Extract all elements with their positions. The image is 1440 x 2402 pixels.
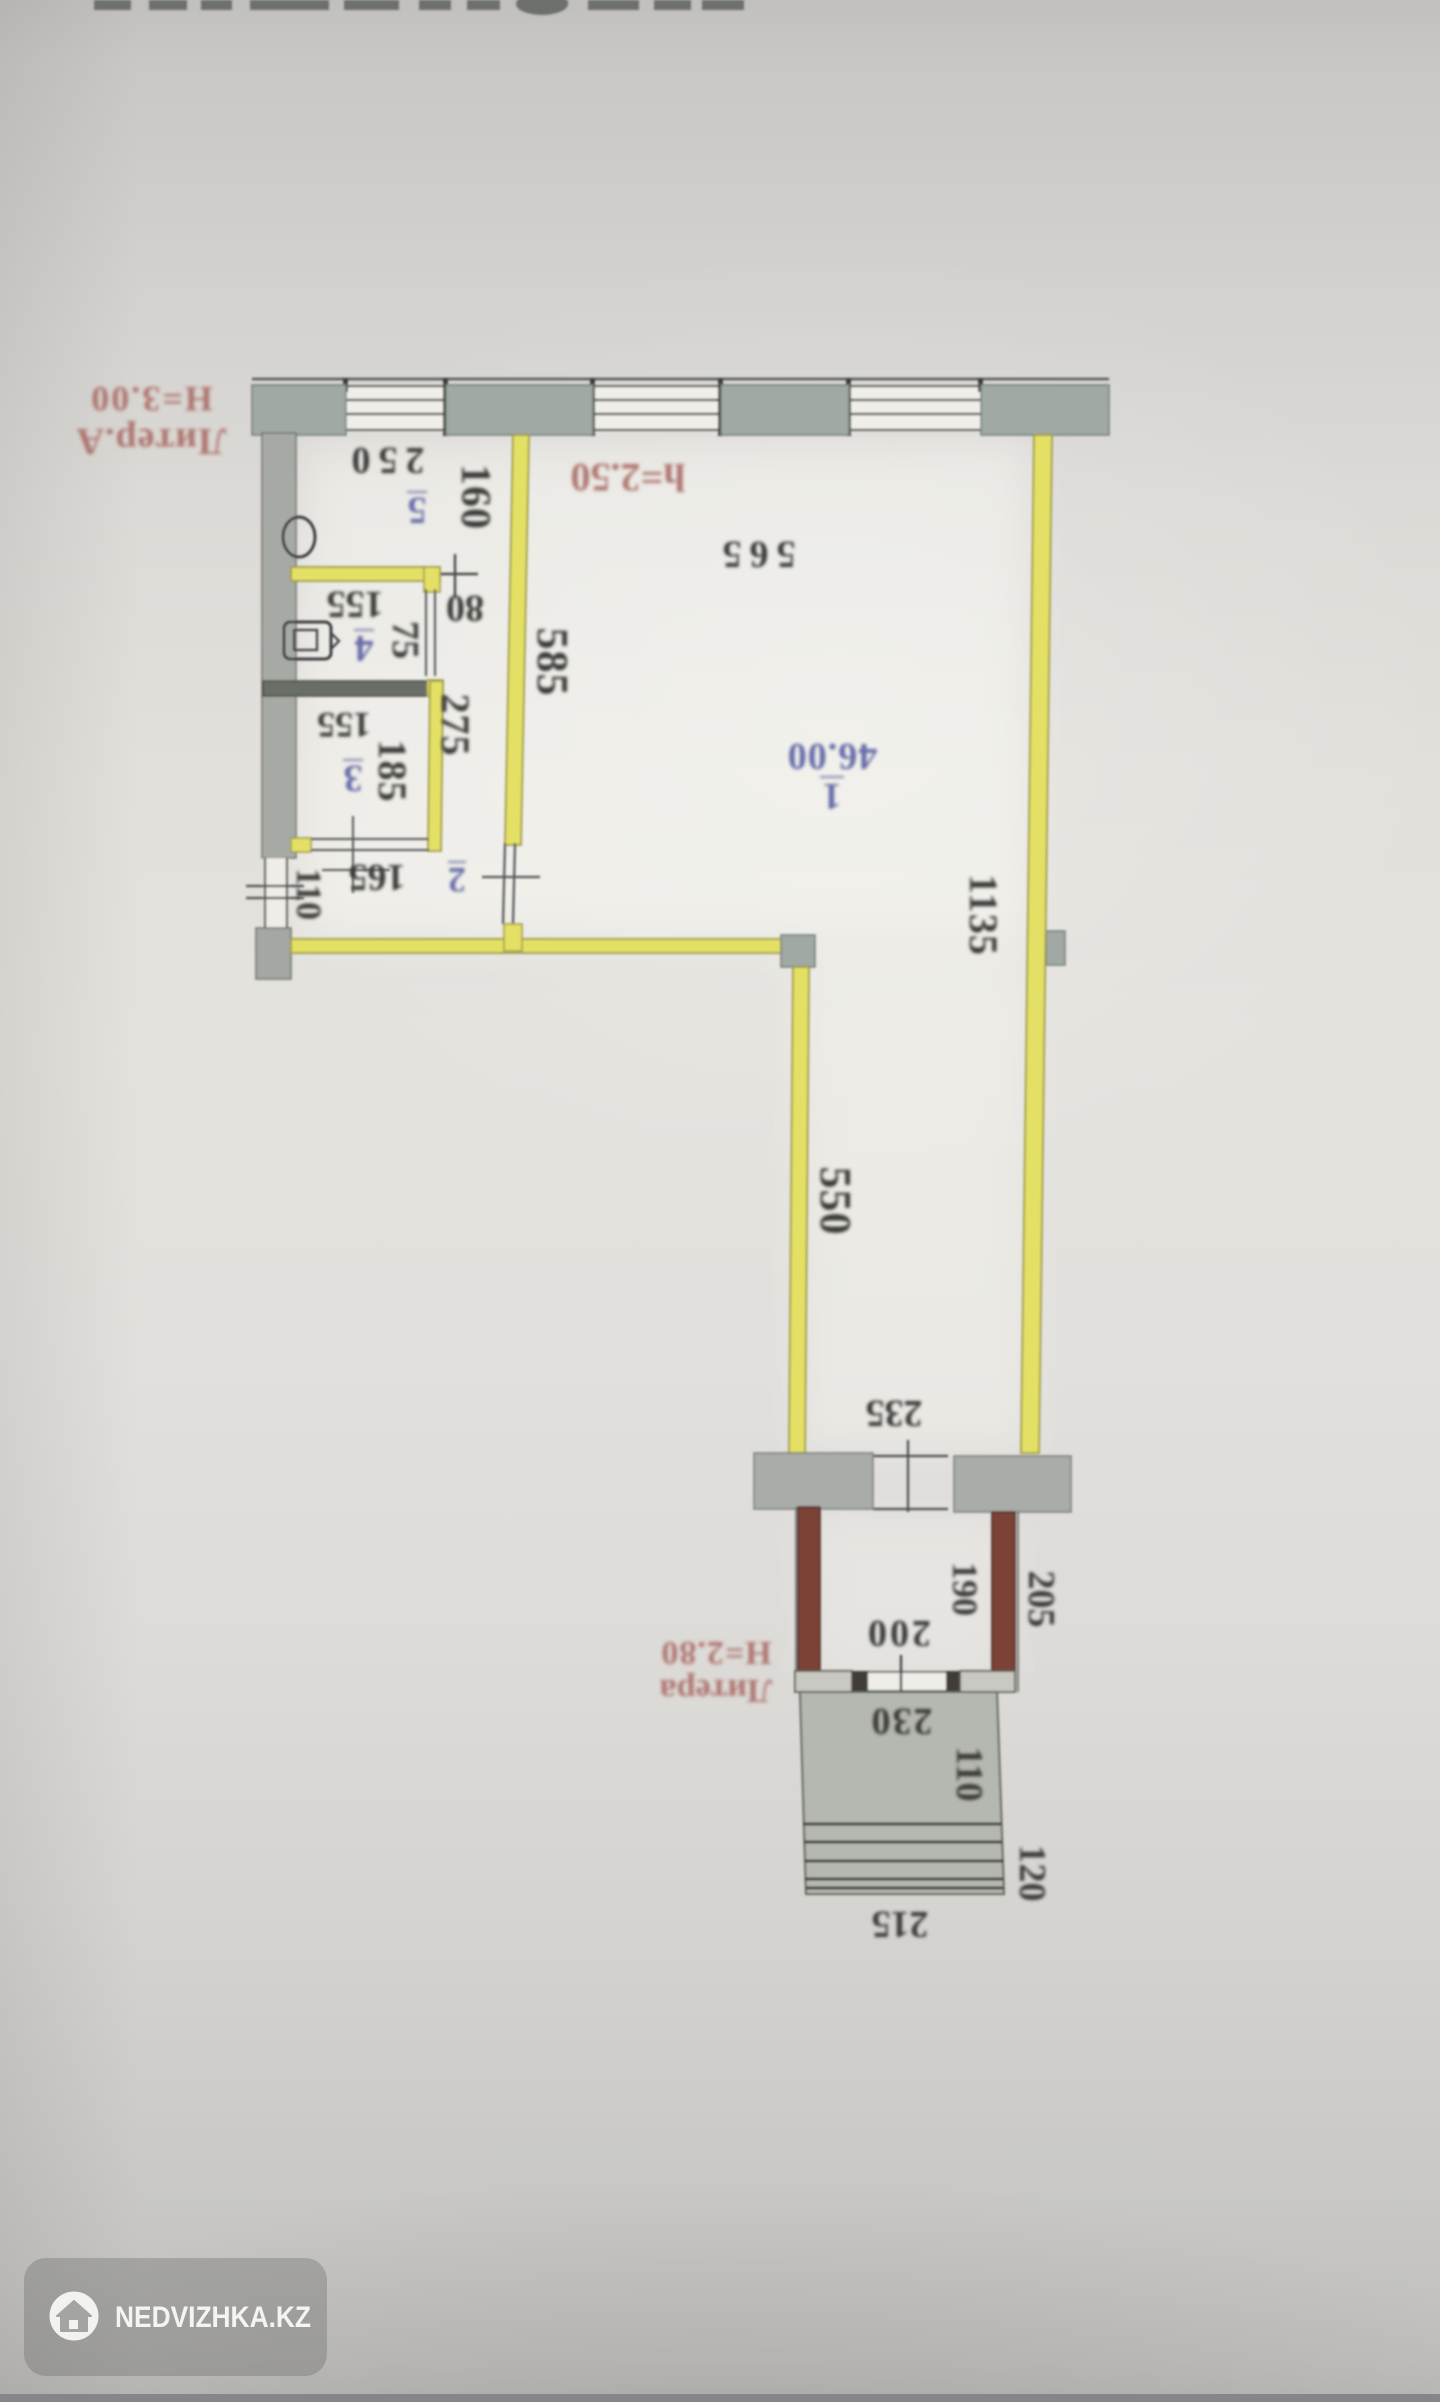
svg-text:200: 200 (865, 1612, 931, 1654)
svg-text:46.00: 46.00 (787, 735, 878, 777)
svg-text:110: 110 (948, 1747, 990, 1802)
svg-text:235: 235 (866, 1392, 923, 1434)
svg-text:Н=3.00: Н=3.00 (89, 379, 213, 419)
svg-text:Литер.А: Литер.А (76, 420, 227, 462)
svg-text:230: 230 (870, 1700, 933, 1742)
svg-text:NEDVIZHKA.KZ: NEDVIZHKA.KZ (115, 2301, 311, 2334)
svg-text:215: 215 (872, 1903, 929, 1945)
svg-text:2: 2 (448, 860, 466, 900)
svg-text:205: 205 (1020, 1571, 1062, 1628)
svg-text:550: 550 (811, 1167, 860, 1236)
svg-text:Литера: Литера (660, 1672, 773, 1709)
svg-text:585: 585 (528, 628, 577, 697)
svg-text:155: 155 (327, 583, 384, 625)
svg-text:165: 165 (349, 856, 406, 898)
svg-text:Н=2.80: Н=2.80 (660, 1634, 771, 1671)
svg-text:565: 565 (715, 533, 796, 575)
svg-text:160: 160 (452, 464, 498, 530)
svg-text:275: 275 (433, 694, 478, 757)
svg-text:120: 120 (1011, 1845, 1053, 1902)
svg-text:190: 190 (945, 1562, 985, 1616)
svg-text:110: 110 (289, 868, 329, 920)
svg-text:1135: 1135 (961, 874, 1006, 956)
svg-text:185: 185 (370, 740, 415, 803)
svg-text:155: 155 (317, 705, 371, 745)
svg-text:4: 4 (355, 627, 374, 669)
svg-text:5: 5 (408, 489, 427, 531)
svg-text:75: 75 (384, 621, 426, 659)
svg-text:250: 250 (344, 439, 425, 481)
svg-text:3: 3 (344, 757, 363, 799)
svg-text:80: 80 (446, 587, 484, 629)
svg-text:h=2.50: h=2.50 (570, 455, 685, 500)
svg-text:1: 1 (823, 775, 842, 817)
